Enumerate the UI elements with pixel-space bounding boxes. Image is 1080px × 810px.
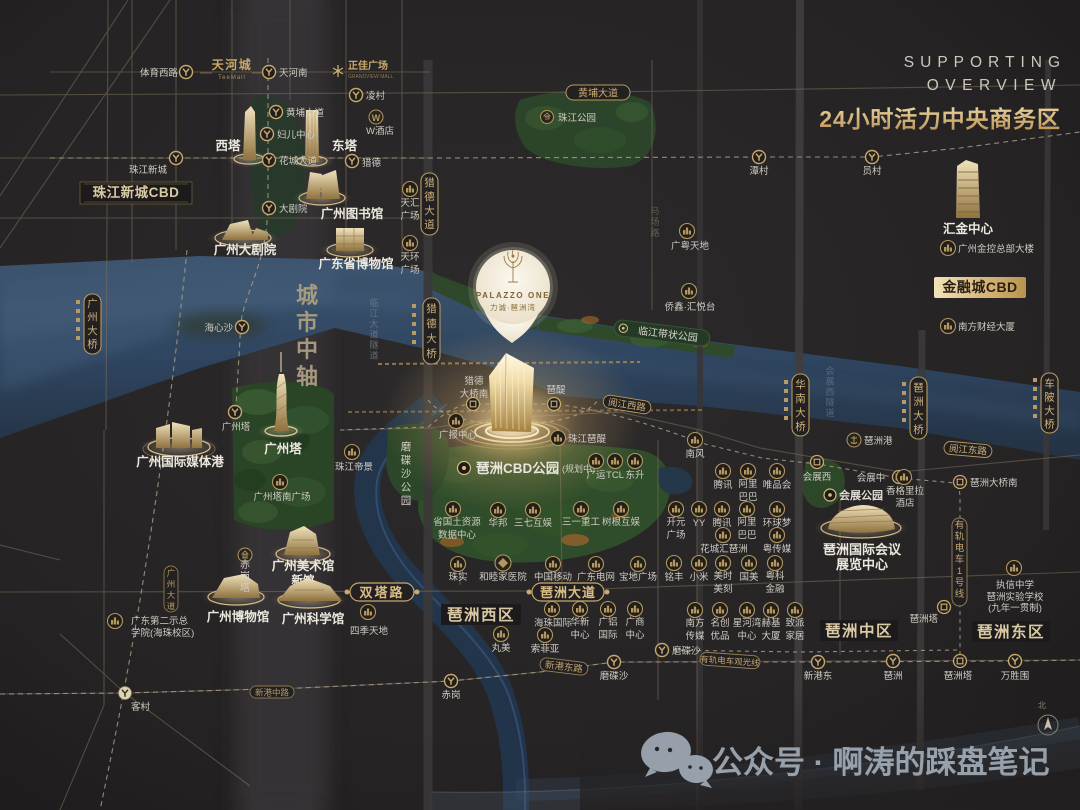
svg-text:开元: 开元 bbox=[666, 517, 686, 528]
svg-text:香格里拉: 香格里拉 bbox=[886, 485, 925, 497]
svg-text:四季天地: 四季天地 bbox=[350, 625, 389, 637]
svg-text:赤岗: 赤岗 bbox=[441, 690, 460, 701]
svg-text:广州塔: 广州塔 bbox=[264, 441, 302, 456]
svg-text:广州大道: 广州大道 bbox=[167, 568, 176, 611]
svg-text:中心: 中心 bbox=[625, 629, 645, 641]
svg-text:腾讯: 腾讯 bbox=[713, 479, 733, 491]
svg-text:天汇: 天汇 bbox=[400, 198, 420, 209]
svg-text:西塔: 西塔 bbox=[215, 138, 241, 153]
svg-text:阿里: 阿里 bbox=[737, 517, 756, 528]
svg-text:会展西: 会展西 bbox=[803, 471, 832, 483]
svg-text:广州国际媒体港: 广州国际媒体港 bbox=[136, 454, 224, 469]
svg-text:磨碟沙公园: 磨碟沙公园 bbox=[401, 441, 412, 507]
svg-text:新港东: 新港东 bbox=[804, 670, 833, 682]
svg-text:赫基: 赫基 bbox=[761, 617, 781, 629]
svg-text:(九年一贯制): (九年一贯制) bbox=[988, 602, 1042, 614]
svg-text:会展公园: 会展公园 bbox=[839, 488, 883, 502]
svg-text:阿里: 阿里 bbox=[738, 479, 757, 490]
svg-text:广东电网: 广东电网 bbox=[577, 571, 615, 583]
svg-text:琶洲实验学校: 琶洲实验学校 bbox=[986, 591, 1044, 603]
svg-text:国际: 国际 bbox=[598, 630, 618, 641]
svg-text:广场: 广场 bbox=[666, 529, 685, 541]
svg-text:琶洲塔: 琶洲塔 bbox=[909, 613, 938, 625]
svg-text:琶洲大道: 琶洲大道 bbox=[540, 585, 596, 600]
svg-text:珠江帝景: 珠江帝景 bbox=[335, 461, 373, 473]
svg-text:黄埔大道: 黄埔大道 bbox=[286, 107, 325, 119]
svg-text:广州大桥: 广州大桥 bbox=[87, 298, 98, 351]
svg-text:琶洲: 琶洲 bbox=[883, 671, 902, 682]
svg-text:琶洲大桥南: 琶洲大桥南 bbox=[970, 477, 1018, 489]
svg-text:马场路: 马场路 bbox=[650, 206, 659, 238]
svg-text:广东省博物馆: 广东省博物馆 bbox=[318, 256, 393, 271]
svg-text:OVERVIEW: OVERVIEW bbox=[927, 77, 1062, 94]
svg-text:双塔路: 双塔路 bbox=[359, 585, 404, 600]
svg-text:磨碟沙: 磨碟沙 bbox=[600, 670, 629, 682]
svg-text:天河城: 天河城 bbox=[212, 57, 253, 72]
svg-text:华邦: 华邦 bbox=[488, 517, 508, 529]
svg-text:汇金中心: 汇金中心 bbox=[943, 221, 994, 236]
svg-text:酒店: 酒店 bbox=[895, 497, 914, 509]
svg-text:北: 北 bbox=[1038, 701, 1046, 710]
svg-text:中心: 中心 bbox=[570, 629, 590, 641]
svg-text:天环: 天环 bbox=[400, 252, 419, 263]
svg-text:临江大道隧道: 临江大道隧道 bbox=[369, 297, 378, 361]
svg-text:会展西隧道: 会展西隧道 bbox=[825, 365, 834, 418]
svg-text:中国移动: 中国移动 bbox=[534, 571, 572, 583]
svg-text:广州美术馆: 广州美术馆 bbox=[272, 558, 335, 573]
svg-text:磨碟沙: 磨碟沙 bbox=[672, 645, 701, 657]
svg-text:有轨电车1号线: 有轨电车1号线 bbox=[955, 519, 965, 600]
svg-text:海珠国际: 海珠国际 bbox=[534, 617, 573, 629]
svg-text:展览中心: 展览中心 bbox=[836, 557, 888, 572]
svg-text:树根互娱: 树根互娱 bbox=[602, 516, 641, 528]
svg-text:国美: 国美 bbox=[739, 571, 759, 583]
svg-text:中心: 中心 bbox=[737, 630, 757, 642]
svg-text:三一重工: 三一重工 bbox=[562, 516, 601, 528]
svg-text:新港中路: 新港中路 bbox=[255, 688, 290, 698]
svg-text:珠江新城CBD: 珠江新城CBD bbox=[93, 184, 180, 200]
svg-text:省国土资源: 省国土资源 bbox=[433, 516, 481, 528]
svg-text:名创: 名创 bbox=[710, 617, 729, 629]
svg-text:客村: 客村 bbox=[131, 701, 151, 713]
svg-text:致派: 致派 bbox=[785, 617, 805, 629]
svg-text:广州大剧院: 广州大剧院 bbox=[214, 242, 277, 257]
svg-text:传媒: 传媒 bbox=[685, 630, 705, 642]
svg-text:广州科学馆: 广州科学馆 bbox=[282, 611, 345, 626]
svg-text:琶洲CBD公园: 琶洲CBD公园 bbox=[476, 461, 559, 476]
svg-text:执信中学: 执信中学 bbox=[996, 579, 1034, 591]
svg-text:YY: YY bbox=[693, 518, 706, 529]
svg-text:广运: 广运 bbox=[586, 469, 606, 481]
svg-text:唯品会: 唯品会 bbox=[763, 479, 792, 491]
svg-text:南方财经大厦: 南方财经大厦 bbox=[958, 321, 1016, 333]
svg-text:猎德: 猎德 bbox=[464, 375, 484, 387]
svg-text:潭村: 潭村 bbox=[749, 165, 769, 177]
svg-text:猎德: 猎德 bbox=[362, 157, 382, 169]
svg-text:24小时活力中央商务区: 24小时活力中央商务区 bbox=[819, 106, 1060, 132]
svg-text:南方: 南方 bbox=[685, 617, 704, 629]
svg-text:家居: 家居 bbox=[785, 630, 804, 642]
svg-text:三七互娱: 三七互娱 bbox=[514, 517, 553, 529]
svg-text:天河南: 天河南 bbox=[279, 67, 308, 79]
svg-text:东塔: 东塔 bbox=[332, 138, 358, 153]
svg-text:琶醍: 琶醍 bbox=[546, 385, 566, 396]
svg-text:珠江琶醍: 珠江琶醍 bbox=[568, 433, 607, 445]
svg-text:琶洲东区: 琶洲东区 bbox=[977, 622, 1045, 641]
svg-text:妇儿中心: 妇儿中心 bbox=[277, 129, 316, 141]
svg-text:金融城CBD: 金融城CBD bbox=[941, 279, 1017, 295]
svg-text:珠江公园: 珠江公园 bbox=[558, 112, 596, 124]
svg-text:星河湾: 星河湾 bbox=[733, 617, 762, 629]
svg-text:TCL: TCL bbox=[606, 470, 624, 481]
svg-text:宝地广场: 宝地广场 bbox=[619, 571, 657, 583]
svg-text:广铝: 广铝 bbox=[598, 616, 617, 628]
svg-text:华新: 华新 bbox=[570, 616, 590, 628]
svg-text:丸美: 丸美 bbox=[491, 642, 511, 654]
svg-text:正佳广场: 正佳广场 bbox=[348, 59, 388, 72]
svg-text:广东第二示总: 广东第二示总 bbox=[131, 615, 189, 627]
svg-text:力诚·琶洲湾: 力诚·琶洲湾 bbox=[490, 302, 536, 312]
svg-text:粤科: 粤科 bbox=[765, 570, 785, 582]
svg-text:广州塔: 广州塔 bbox=[222, 421, 251, 433]
svg-text:W: W bbox=[372, 113, 381, 123]
svg-text:数据中心: 数据中心 bbox=[438, 529, 477, 541]
svg-text:万胜围: 万胜围 bbox=[1001, 671, 1030, 682]
svg-text:W酒店: W酒店 bbox=[366, 125, 394, 137]
svg-text:公众号 · 啊涛的踩盘笔记: 公众号 · 啊涛的踩盘笔记 bbox=[712, 745, 1050, 780]
svg-text:海心沙: 海心沙 bbox=[204, 322, 233, 334]
svg-text:赤岗塔: 赤岗塔 bbox=[240, 559, 250, 594]
svg-text:广州博物馆: 广州博物馆 bbox=[207, 609, 270, 624]
svg-text:珠实: 珠实 bbox=[448, 571, 467, 583]
svg-text:GRANDVIEW MALL: GRANDVIEW MALL bbox=[348, 74, 394, 80]
svg-text:花城大道: 花城大道 bbox=[279, 155, 318, 167]
svg-text:广州图书馆: 广州图书馆 bbox=[321, 206, 384, 221]
svg-text:花城汇琶洲: 花城汇琶洲 bbox=[700, 543, 748, 555]
svg-text:广粤天地: 广粤天地 bbox=[671, 240, 710, 252]
svg-text:粤传媒: 粤传媒 bbox=[763, 543, 792, 555]
svg-text:琶洲西区: 琶洲西区 bbox=[447, 606, 515, 624]
svg-text:广州塔南广场: 广州塔南广场 bbox=[253, 491, 310, 503]
svg-text:TeeMall: TeeMall bbox=[218, 75, 246, 81]
svg-text:员村: 员村 bbox=[862, 165, 882, 177]
svg-text:琶洲国际会议: 琶洲国际会议 bbox=[823, 542, 902, 557]
svg-text:珠江新城: 珠江新城 bbox=[129, 164, 168, 176]
svg-text:SUPPORTING: SUPPORTING bbox=[904, 54, 1066, 71]
svg-text:学院(海珠校区): 学院(海珠校区) bbox=[131, 627, 194, 639]
svg-text:美时: 美时 bbox=[713, 570, 733, 582]
svg-text:铭丰: 铭丰 bbox=[664, 571, 683, 583]
svg-text:会展中: 会展中 bbox=[857, 472, 886, 484]
svg-text:小米: 小米 bbox=[689, 571, 709, 583]
svg-text:巴巴: 巴巴 bbox=[737, 530, 756, 541]
svg-text:琶洲塔: 琶洲塔 bbox=[944, 670, 973, 682]
svg-text:琶洲港: 琶洲港 bbox=[864, 435, 893, 447]
svg-text:和睦家医院: 和睦家医院 bbox=[479, 571, 527, 583]
svg-text:广州金控总部大楼: 广州金控总部大楼 bbox=[958, 243, 1035, 255]
svg-text:琶洲中区: 琶洲中区 bbox=[825, 621, 893, 640]
svg-text:大厦: 大厦 bbox=[761, 630, 781, 642]
svg-text:广场: 广场 bbox=[400, 210, 419, 222]
svg-text:大桥南: 大桥南 bbox=[460, 388, 489, 400]
svg-text:东升: 东升 bbox=[625, 469, 645, 481]
svg-text:黄埔大道: 黄埔大道 bbox=[578, 87, 618, 100]
svg-text:PALAZZO ONE: PALAZZO ONE bbox=[476, 291, 550, 300]
svg-text:凌村: 凌村 bbox=[366, 90, 386, 102]
svg-text:金融: 金融 bbox=[765, 583, 785, 595]
svg-text:广商: 广商 bbox=[625, 616, 644, 628]
svg-text:美刻: 美刻 bbox=[713, 583, 732, 595]
svg-text:侨鑫·汇悦台: 侨鑫·汇悦台 bbox=[665, 301, 716, 313]
svg-text:广场: 广场 bbox=[400, 264, 419, 276]
svg-text:南风: 南风 bbox=[685, 448, 705, 460]
svg-text:体育西路: 体育西路 bbox=[140, 67, 179, 79]
svg-text:广报中心: 广报中心 bbox=[439, 429, 478, 441]
svg-text:索菲亚: 索菲亚 bbox=[531, 643, 560, 655]
svg-text:优品: 优品 bbox=[710, 630, 729, 642]
svg-text:大剧院: 大剧院 bbox=[279, 203, 308, 215]
